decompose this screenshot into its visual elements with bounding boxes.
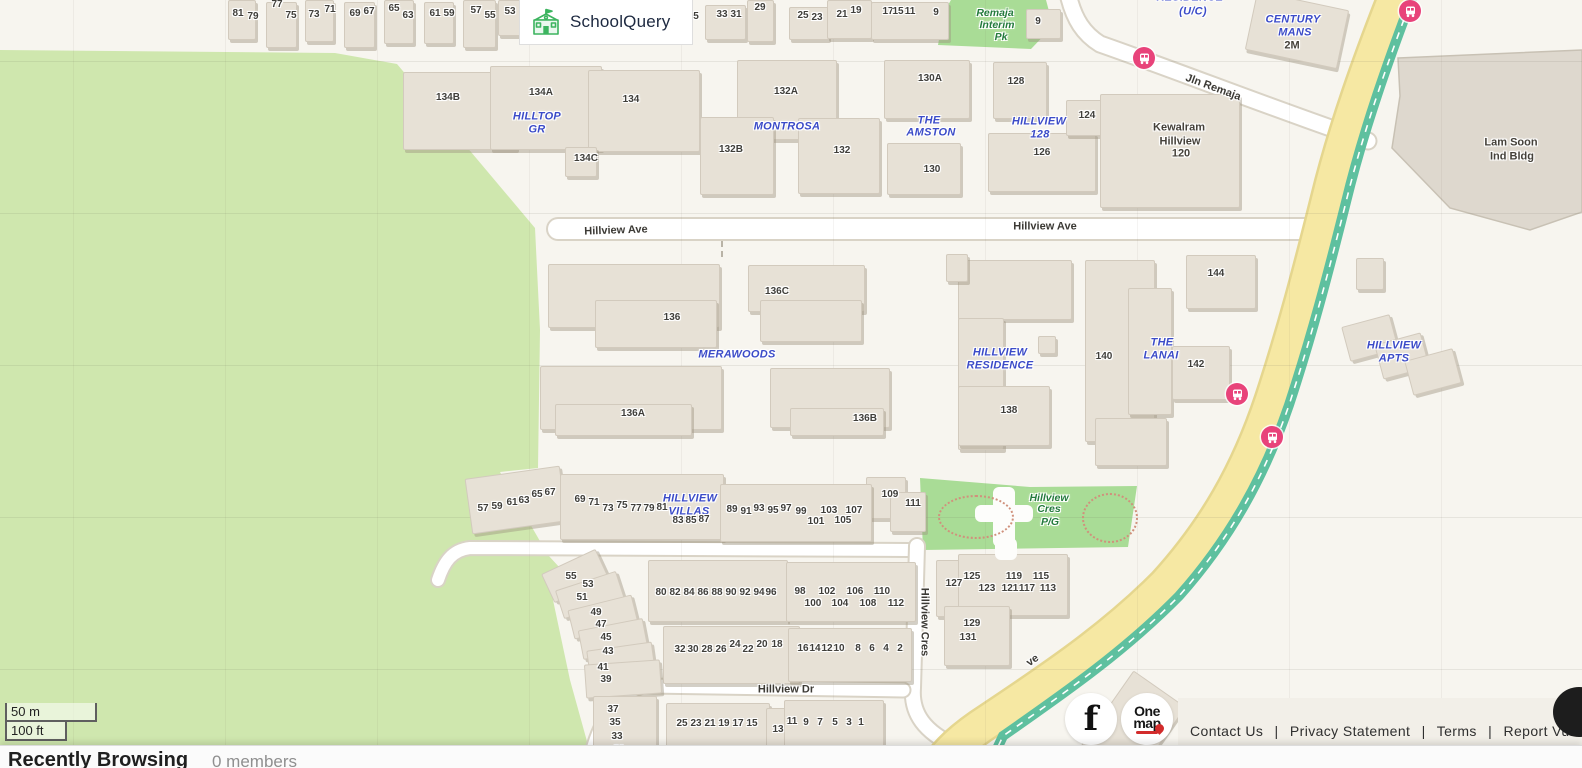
- schoolquery-brand-card[interactable]: SchoolQuery: [519, 0, 693, 45]
- bus-stop-icon[interactable]: [1226, 383, 1248, 405]
- bus-stop-icon[interactable]: [1399, 0, 1421, 22]
- contact-us-link[interactable]: Contact Us: [1190, 723, 1263, 739]
- markers-layer: [0, 0, 1582, 768]
- brand-name: SchoolQuery: [570, 12, 670, 32]
- recently-browsing-title: Recently Browsing: [8, 749, 188, 768]
- footer-links: Contact Us | Privacy Statement | Terms |…: [1190, 723, 1582, 739]
- bus-stop-icon[interactable]: [1133, 47, 1155, 69]
- scale-metric: 50 m: [5, 703, 97, 722]
- onemap-logo-button[interactable]: One map: [1121, 693, 1173, 745]
- facebook-button[interactable]: f: [1065, 693, 1117, 745]
- facebook-icon: f: [1084, 699, 1099, 739]
- privacy-link[interactable]: Privacy Statement: [1290, 723, 1410, 739]
- school-icon: [531, 8, 561, 36]
- members-count: 0 members: [212, 752, 297, 768]
- terms-link[interactable]: Terms: [1437, 723, 1477, 739]
- bus-stop-icon[interactable]: [1261, 426, 1283, 448]
- scale-imperial: 100 ft: [5, 722, 67, 741]
- map-canvas[interactable]: 8179777573716967656361595755535333129252…: [0, 0, 1582, 768]
- scale-bar: 50 m 100 ft: [5, 703, 97, 741]
- bottom-bar: Recently Browsing 0 members: [0, 745, 1582, 768]
